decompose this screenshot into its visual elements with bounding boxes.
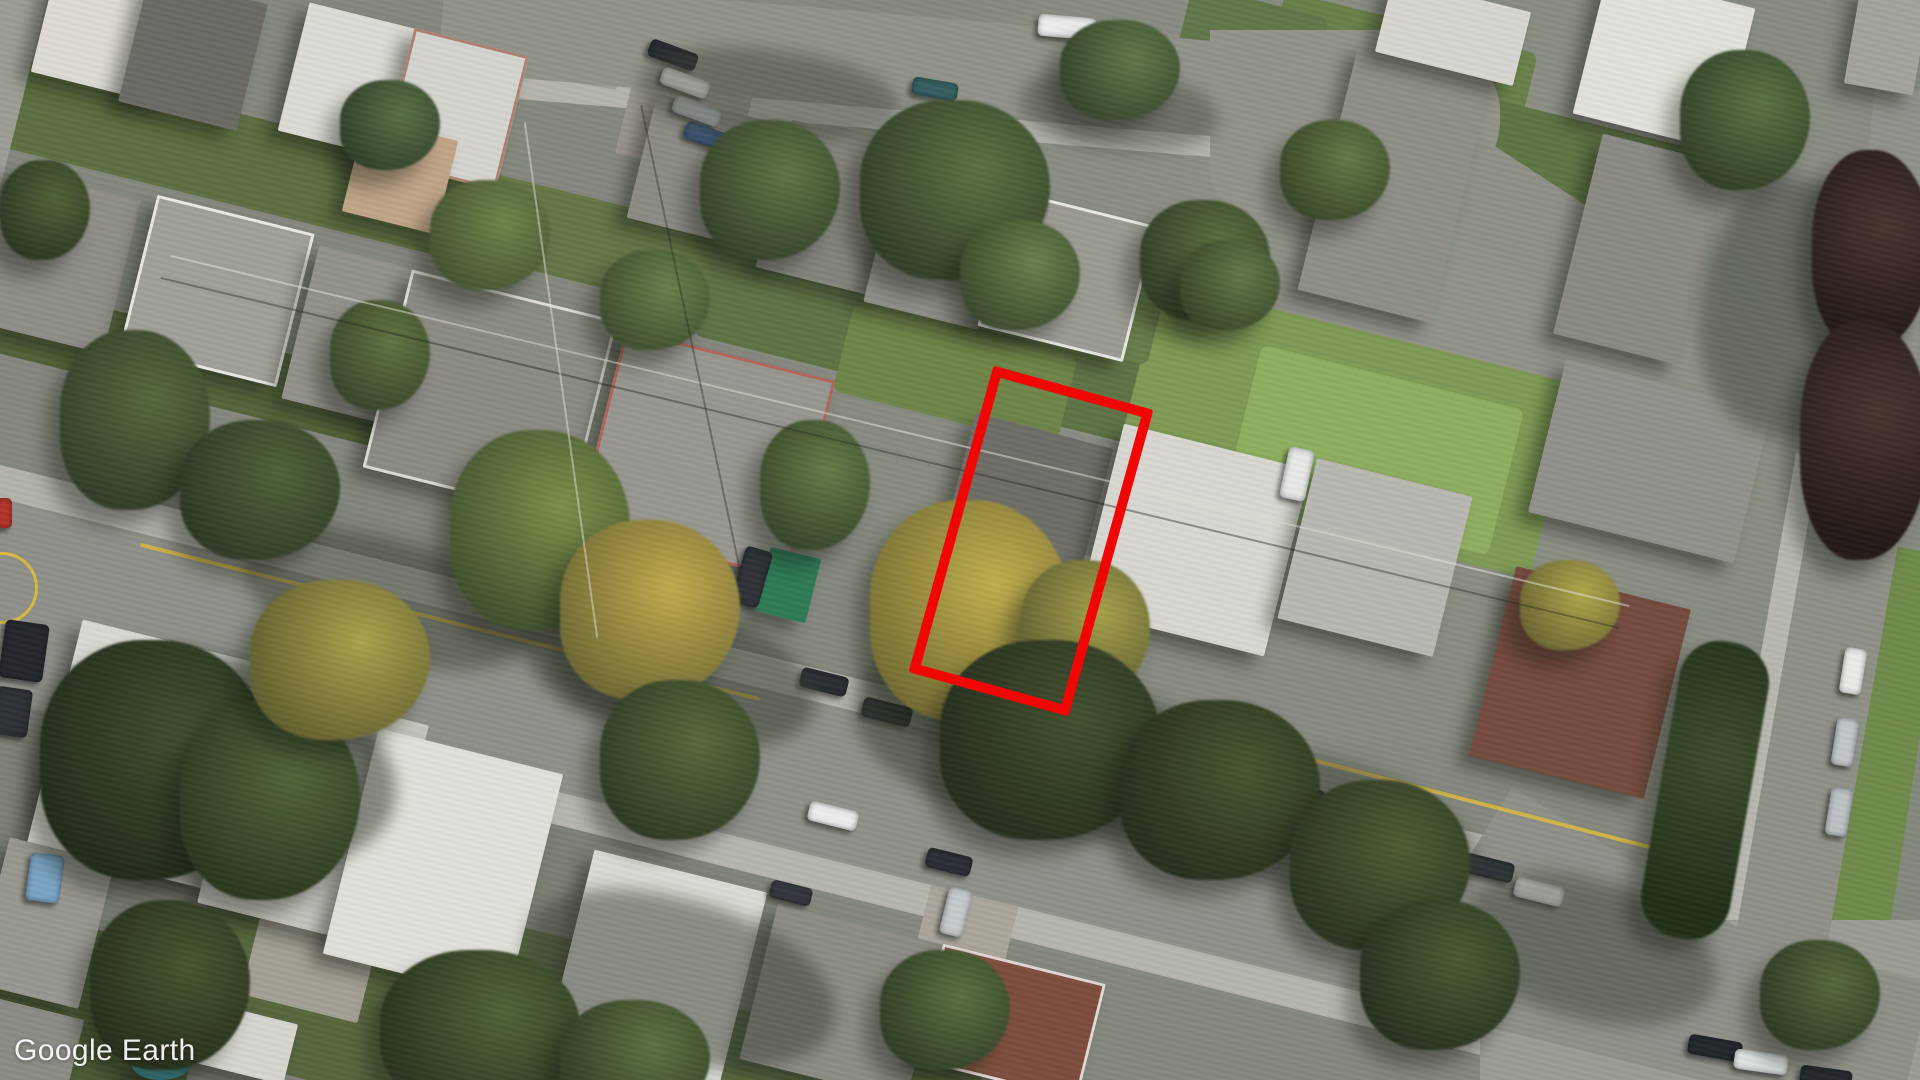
car <box>25 852 65 904</box>
google-earth-watermark: Google Earth <box>14 1034 196 1068</box>
tree <box>1680 50 1810 190</box>
tree-dark-maple <box>1800 320 1920 560</box>
car <box>0 686 33 739</box>
google-earth-viewport: Google Earth <box>0 0 1920 1080</box>
tree <box>430 180 550 290</box>
car <box>0 619 50 683</box>
car <box>0 498 12 528</box>
tree <box>600 250 710 350</box>
building-roof <box>1844 0 1920 95</box>
tree <box>760 420 870 550</box>
